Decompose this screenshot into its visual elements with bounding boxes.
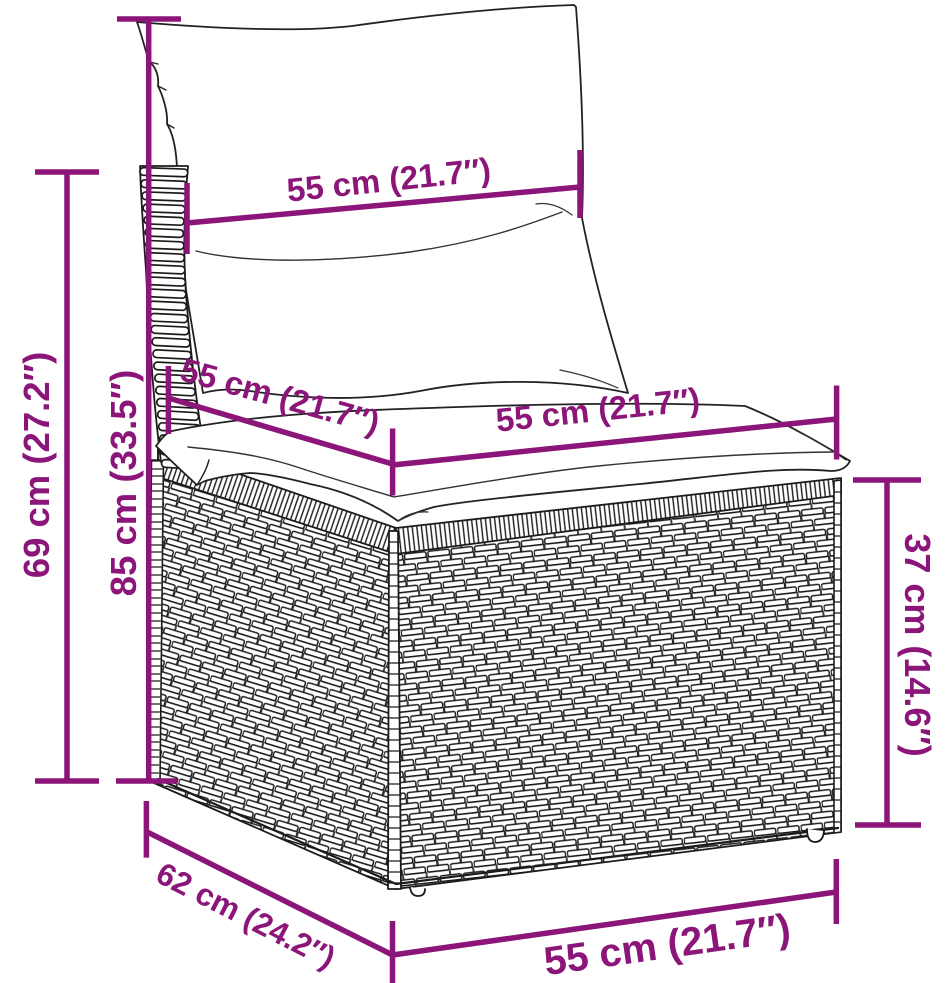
svg-text:85 cm (33.5″): 85 cm (33.5″) bbox=[103, 370, 144, 596]
svg-text:37 cm (14.6″): 37 cm (14.6″) bbox=[897, 533, 938, 756]
svg-text:69 cm (27.2″): 69 cm (27.2″) bbox=[16, 352, 57, 578]
